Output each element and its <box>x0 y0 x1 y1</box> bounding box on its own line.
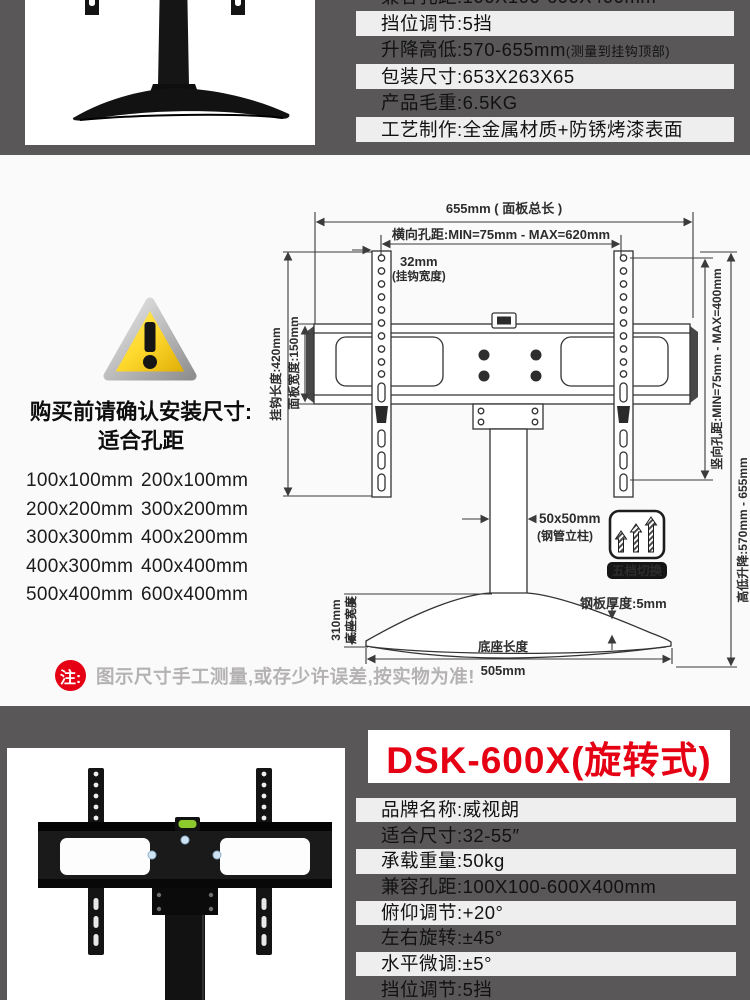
product-photo-stand-base <box>25 0 315 145</box>
dimension-diagram: 五档切换 655mm ( 面板总长 ) 横向孔距:MIN=75mm - MAX=… <box>260 185 750 685</box>
top-spec-list: 兼容孔距:100X100-600X400mm 挡位调节:5挡 升降高低:570-… <box>356 0 734 143</box>
spec-row: 品牌名称:威视朗 <box>356 798 736 822</box>
spec-row: 产品毛重:6.5KG <box>356 90 734 115</box>
product-title-text: DSK-600X(旋转式) <box>386 730 712 784</box>
headline-line2: 适合孔距 <box>10 427 272 456</box>
spec-row: 升降高低:570-655mm(测量到挂钩顶部) <box>356 37 734 62</box>
spec-text: 挡位调节:5挡 <box>381 13 492 34</box>
column-size-label: 50x50mm <box>539 511 601 526</box>
spec-row: 承载重量:50kg <box>356 849 736 873</box>
stand-base-photo-drawing <box>25 0 315 145</box>
hook-width-value: 32mm <box>400 254 438 269</box>
spec-text: 适合尺寸:32-55″ <box>381 825 520 846</box>
base-width-label: 底座宽度 <box>343 595 358 644</box>
hole-size-item: 300x200mm <box>141 496 253 525</box>
base-length-label: 底座长度 <box>478 639 529 654</box>
note-badge-icon: 注: <box>55 660 86 691</box>
vertical-pitch-label: 竖向孔距:MIN=75mm - MAX=400mm <box>709 268 724 469</box>
base-width-value: 310mm <box>329 599 343 640</box>
horizontal-pitch-label: 横向孔距:MIN=75mm - MAX=620mm <box>392 227 610 242</box>
hook-width-label: (挂钩宽度) <box>392 269 446 283</box>
top-spec-section: 兼容孔距:100X100-600X400mm 挡位调节:5挡 升降高低:570-… <box>0 0 750 155</box>
spec-text: 兼容孔距:100X100-600X400mm <box>381 876 656 897</box>
spec-text: 产品毛重:6.5KG <box>381 92 518 113</box>
hole-size-item: 600x400mm <box>141 581 253 610</box>
five-gear-badge: 五档切换 <box>607 511 667 579</box>
panel-width-label: 面板宽度:150mm <box>286 316 301 409</box>
spec-row: 兼容孔距:100X100-600X400mm <box>356 0 734 9</box>
confirm-size-headline: 购买前请确认安装尺寸: 适合孔距 <box>10 398 272 456</box>
spec-row: 俯仰调节:+20° <box>356 901 736 925</box>
hole-size-item: 400x200mm <box>141 524 253 553</box>
hole-size-list: 100x100mm 200x100mm 200x200mm 300x200mm … <box>26 467 253 610</box>
total-length-label: 655mm ( 面板总长 ) <box>446 201 562 216</box>
spec-text: 水平微调:±5° <box>381 953 492 974</box>
hole-size-item: 200x200mm <box>26 496 141 525</box>
spec-row: 工艺制作:全金属材质+防锈烤漆表面 <box>356 117 734 142</box>
base-length-value: 505mm <box>481 663 526 678</box>
gear-badge-label: 五档切换 <box>612 563 663 578</box>
hole-size-item: 100x100mm <box>26 467 141 496</box>
bracket-shapes <box>38 768 332 1000</box>
lift-range-label: 高低升降:570mm - 655mm <box>735 457 750 602</box>
stand-base-shapes <box>73 0 289 121</box>
spec-row: 挡位调节:5挡 <box>356 978 736 1000</box>
product-title: DSK-600X(旋转式) <box>368 730 730 783</box>
warning-triangle-icon <box>100 292 200 384</box>
spec-row: 包装尺寸:653X263X65 <box>356 64 734 89</box>
spec-row: 水平微调:±5° <box>356 952 736 976</box>
hole-size-item: 200x100mm <box>141 467 253 496</box>
spec-suffix: (测量到挂钩顶部) <box>566 44 670 59</box>
spec-row: 适合尺寸:32-55″ <box>356 824 736 848</box>
spec-row: 兼容孔距:100X100-600X400mm <box>356 875 736 899</box>
spec-text: 俯仰调节:+20° <box>381 902 503 923</box>
spec-text: 品牌名称:威视朗 <box>381 799 520 820</box>
headline-line1: 购买前请确认安装尺寸: <box>10 398 272 427</box>
spec-text: 承载重量:50kg <box>381 850 505 871</box>
spec-text: 工艺制作:全金属材质+防锈烤漆表面 <box>381 119 683 140</box>
bottom-product-section: DSK-600X(旋转式) 品牌名称:威视朗 适合尺寸:32-55″ 承载重量:… <box>0 706 750 1000</box>
hole-size-item: 500x400mm <box>26 581 141 610</box>
product-photo-bracket <box>7 748 345 1000</box>
spec-text: 升降高低:570-655mm <box>381 39 566 60</box>
spec-row: 挡位调节:5挡 <box>356 11 734 36</box>
bracket-photo-drawing <box>7 748 345 1000</box>
spec-text: 包装尺寸:653X263X65 <box>381 66 575 87</box>
spec-text: 挡位调节:5挡 <box>381 979 492 1000</box>
spec-text: 兼容孔距:100X100-600X400mm <box>381 0 656 7</box>
bottom-spec-list: 品牌名称:威视朗 适合尺寸:32-55″ 承载重量:50kg 兼容孔距:100X… <box>356 798 736 1000</box>
hole-size-item: 400x400mm <box>141 553 253 582</box>
spec-row: 左右旋转:±45° <box>356 926 736 950</box>
column-type-label: (钢管立柱) <box>537 528 593 543</box>
hook-length-label: 挂钩长度:420mm <box>268 327 283 420</box>
spec-text: 左右旋转:±45° <box>381 927 503 948</box>
hole-size-item: 300x300mm <box>26 524 141 553</box>
product-detail-page: 兼容孔距:100X100-600X400mm 挡位调节:5挡 升降高低:570-… <box>0 0 750 1000</box>
plate-thickness-label: 钢板厚度:5mm <box>580 596 667 611</box>
hole-size-item: 400x300mm <box>26 553 141 582</box>
dimension-diagram-section: 购买前请确认安装尺寸: 适合孔距 100x100mm 200x100mm 200… <box>0 155 750 706</box>
